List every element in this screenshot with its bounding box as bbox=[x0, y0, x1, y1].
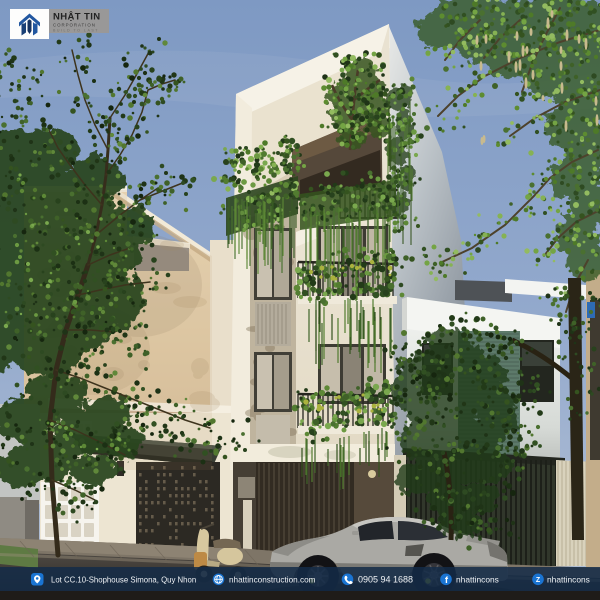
svg-text:nhattinconstruction.com: nhattinconstruction.com bbox=[229, 576, 316, 585]
svg-text:nhattincons: nhattincons bbox=[547, 575, 590, 585]
svg-text:nhattincons: nhattincons bbox=[456, 575, 499, 585]
svg-text:0905 94 1688: 0905 94 1688 bbox=[358, 575, 413, 585]
svg-text:Lot CC.10-Shophouse Simona, Qu: Lot CC.10-Shophouse Simona, Quy Nhon bbox=[51, 576, 196, 585]
svg-text:NHẬT TIN: NHẬT TIN bbox=[53, 11, 101, 23]
svg-text:BUILD TO LAST: BUILD TO LAST bbox=[53, 29, 99, 33]
svg-text:Z: Z bbox=[536, 577, 541, 584]
svg-text:CORPORATION: CORPORATION bbox=[53, 23, 96, 28]
